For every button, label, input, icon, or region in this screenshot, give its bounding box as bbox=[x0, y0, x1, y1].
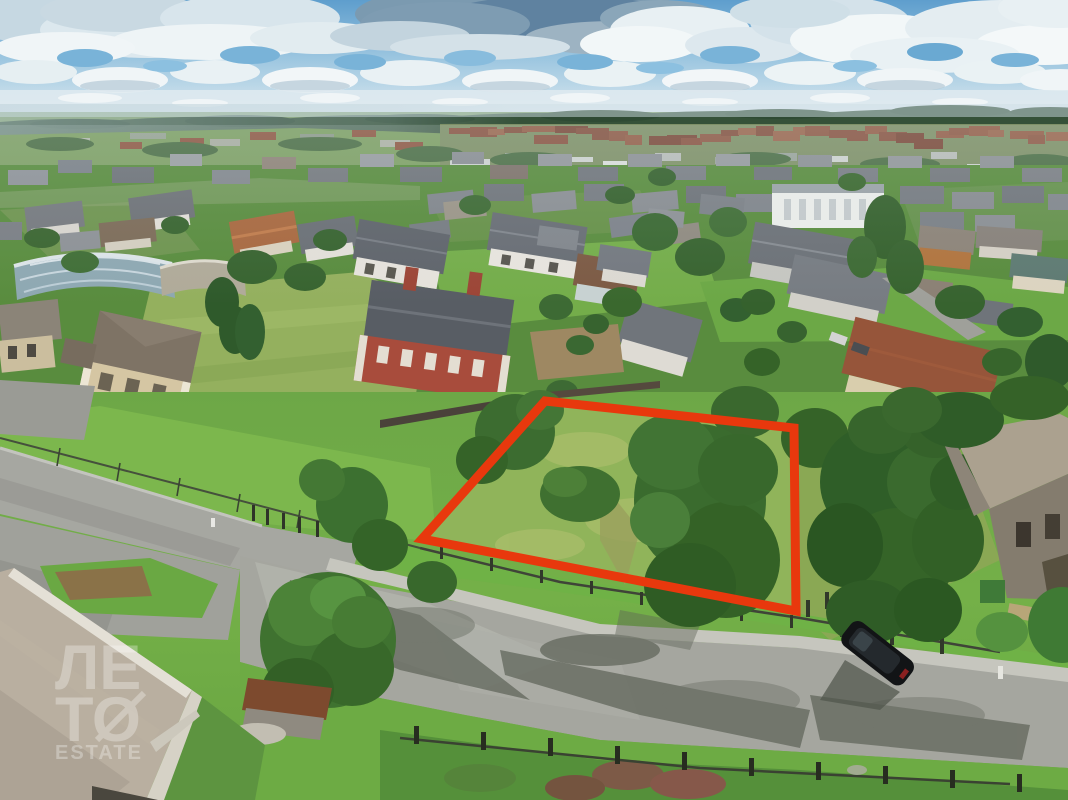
svg-text:ESTATE: ESTATE bbox=[55, 742, 143, 764]
